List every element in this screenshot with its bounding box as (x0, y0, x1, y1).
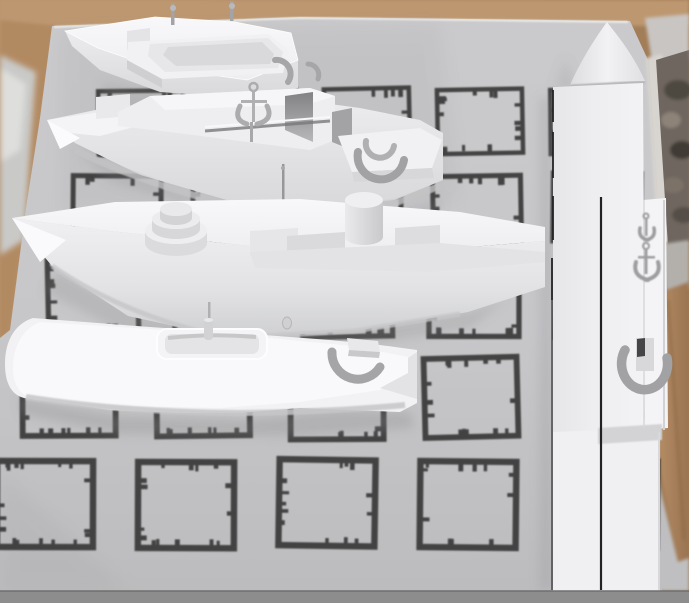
ar-viewport[interactable]: Small patrol boat model (top) Corvette m… (0, 0, 689, 603)
ship2-stern-platform (338, 128, 442, 182)
bottom-bar (0, 591, 689, 603)
ship4-mast-stub (204, 318, 213, 340)
ship4-porthole (283, 317, 292, 329)
scene-canvas: Small patrol boat model (top) Corvette m… (0, 0, 689, 603)
ship3-funnel (345, 192, 383, 245)
